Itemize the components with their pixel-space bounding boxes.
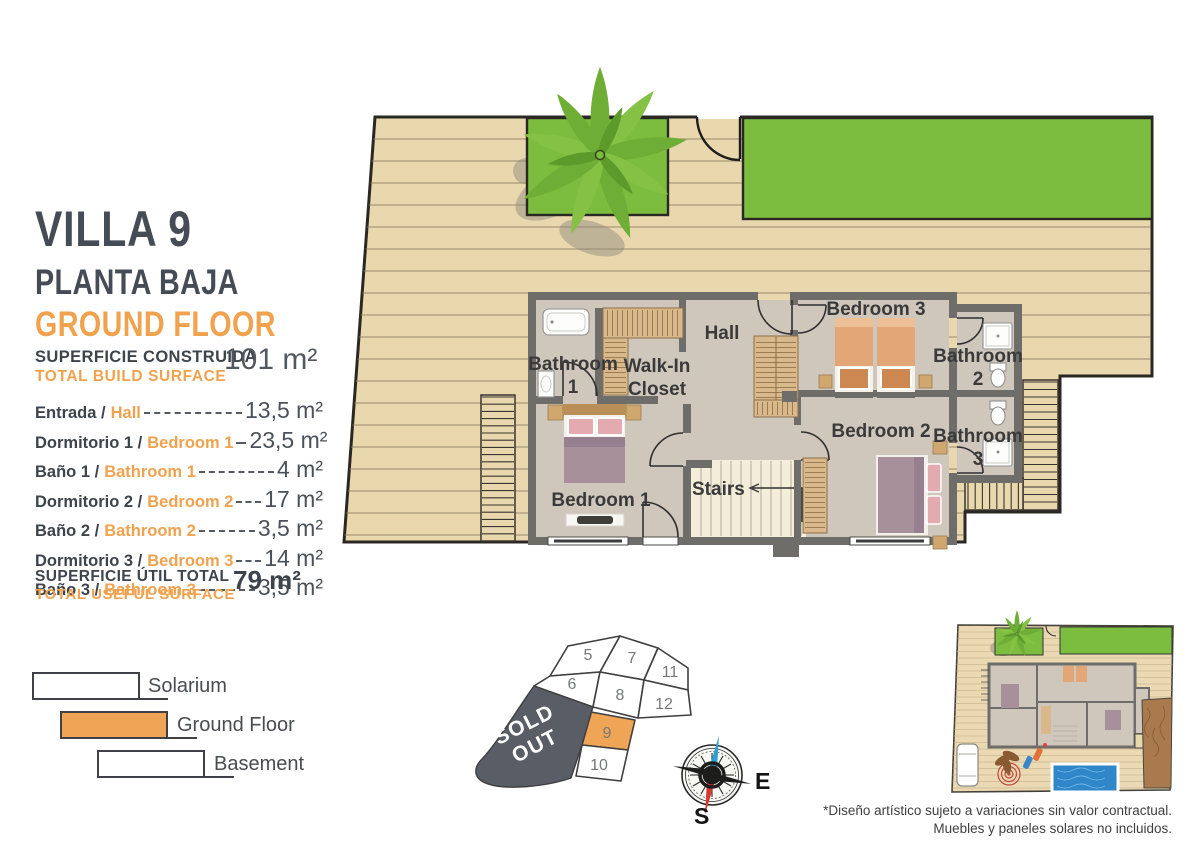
- lawn-right: [743, 118, 1152, 219]
- plot-num-8: 8: [616, 687, 625, 704]
- leader-line: [199, 530, 255, 532]
- thumb-lawn-right: [1060, 627, 1172, 654]
- label-bedroom3: Bedroom 3: [826, 299, 925, 320]
- room-row-bathroom2: Baño 2 /Bathroom 23,5 m²: [35, 515, 323, 545]
- thumb-pool-icon: [1052, 764, 1118, 792]
- disclaimer-line-2: Muebles y paneles solares no incluidos.: [772, 820, 1172, 838]
- label-bathroom2-num: 2: [973, 369, 984, 390]
- plot-num-12: 12: [655, 696, 673, 713]
- legend-rule: [60, 737, 197, 739]
- plot-num-10: 10: [590, 757, 608, 774]
- site-plan-thumbnail: [945, 598, 1185, 798]
- label-bedroom1: Bedroom 1: [551, 490, 651, 511]
- plot-num-11: 11: [662, 664, 679, 681]
- room-row-bathroom1: Baño 1 /Bathroom 14 m²: [35, 456, 323, 486]
- plot-num-9: 9: [603, 725, 612, 742]
- legend-label-ground-floor: Ground Floor: [177, 714, 295, 737]
- legend-rule: [32, 698, 168, 700]
- subtitle-spanish: PLANTA BAJA: [35, 263, 284, 303]
- hall-wardrobe: [754, 336, 798, 417]
- subtitle-english: GROUND FLOOR: [35, 305, 329, 345]
- useful-surface-label-es: SUPERFICIE ÚTIL TOTAL: [35, 568, 229, 586]
- legend-rule: [97, 776, 234, 778]
- floor-plan: Hall Bathroom 1 Walk-In Closet Bedroom 3…: [330, 55, 1170, 575]
- thumb-house: [981, 664, 1149, 748]
- label-hall: Hall: [705, 323, 740, 344]
- toilet-icon: [990, 401, 1006, 425]
- plot-num-6: 6: [568, 676, 577, 693]
- disclaimer: *Diseño artístico sujeto a variaciones s…: [772, 802, 1172, 837]
- build-surface-value: 101 m²: [224, 343, 317, 377]
- villa-title: VILLA 9: [35, 200, 192, 258]
- label-walkin-2: Closet: [628, 379, 687, 400]
- label-bathroom1-num: 1: [568, 377, 579, 398]
- leader-line: [236, 501, 261, 503]
- leader-line: [144, 412, 242, 414]
- room-row-hall: Entrada /Hall13,5 m²: [35, 397, 323, 427]
- plot-num-7: 7: [628, 650, 637, 667]
- compass-east-label: E: [755, 768, 770, 794]
- label-bedroom2: Bedroom 2: [831, 421, 930, 442]
- build-surface-label-en: TOTAL BUILD SURFACE: [35, 368, 226, 386]
- useful-surface-label-en: TOTAL USEFUL SURFACE: [35, 586, 235, 603]
- label-stairs: Stairs: [692, 479, 745, 500]
- bathtub-icon: [543, 309, 589, 335]
- legend-swatch-ground-floor: [60, 711, 168, 739]
- legend-swatch-solarium: [32, 672, 140, 700]
- plot-num-5: 5: [584, 647, 593, 664]
- legend-label-basement: Basement: [214, 753, 304, 776]
- thumb-dirt-area: [1142, 698, 1172, 788]
- label-bathroom2: Bathroom: [933, 346, 1023, 367]
- leader-line: [236, 442, 246, 444]
- room-row-bedroom2: Dormitorio 2 /Bedroom 217 m²: [35, 486, 323, 516]
- label-bathroom1: Bathroom: [528, 354, 618, 375]
- compass-south-label: S: [694, 803, 709, 829]
- legend-label-solarium: Solarium: [148, 675, 227, 698]
- deck-steps-left: [481, 395, 515, 541]
- thumb-car-icon: [957, 744, 978, 786]
- room-row-bedroom1: Dormitorio 1 /Bedroom 123,5 m²: [35, 427, 323, 457]
- page-title: VILLA 9: [35, 200, 226, 258]
- legend-swatch-basement: [97, 750, 205, 778]
- leader-line: [199, 471, 274, 473]
- label-bathroom3: Bathroom: [933, 426, 1023, 447]
- label-walkin-1: Walk-In: [624, 356, 691, 377]
- useful-surface-value: 79 m²: [233, 565, 301, 596]
- leader-line: [236, 560, 261, 562]
- disclaimer-line-1: *Diseño artístico sujeto a variaciones s…: [772, 802, 1172, 820]
- bedroom2-wardrobe: [803, 458, 827, 533]
- label-bathroom3-num: 3: [973, 449, 984, 470]
